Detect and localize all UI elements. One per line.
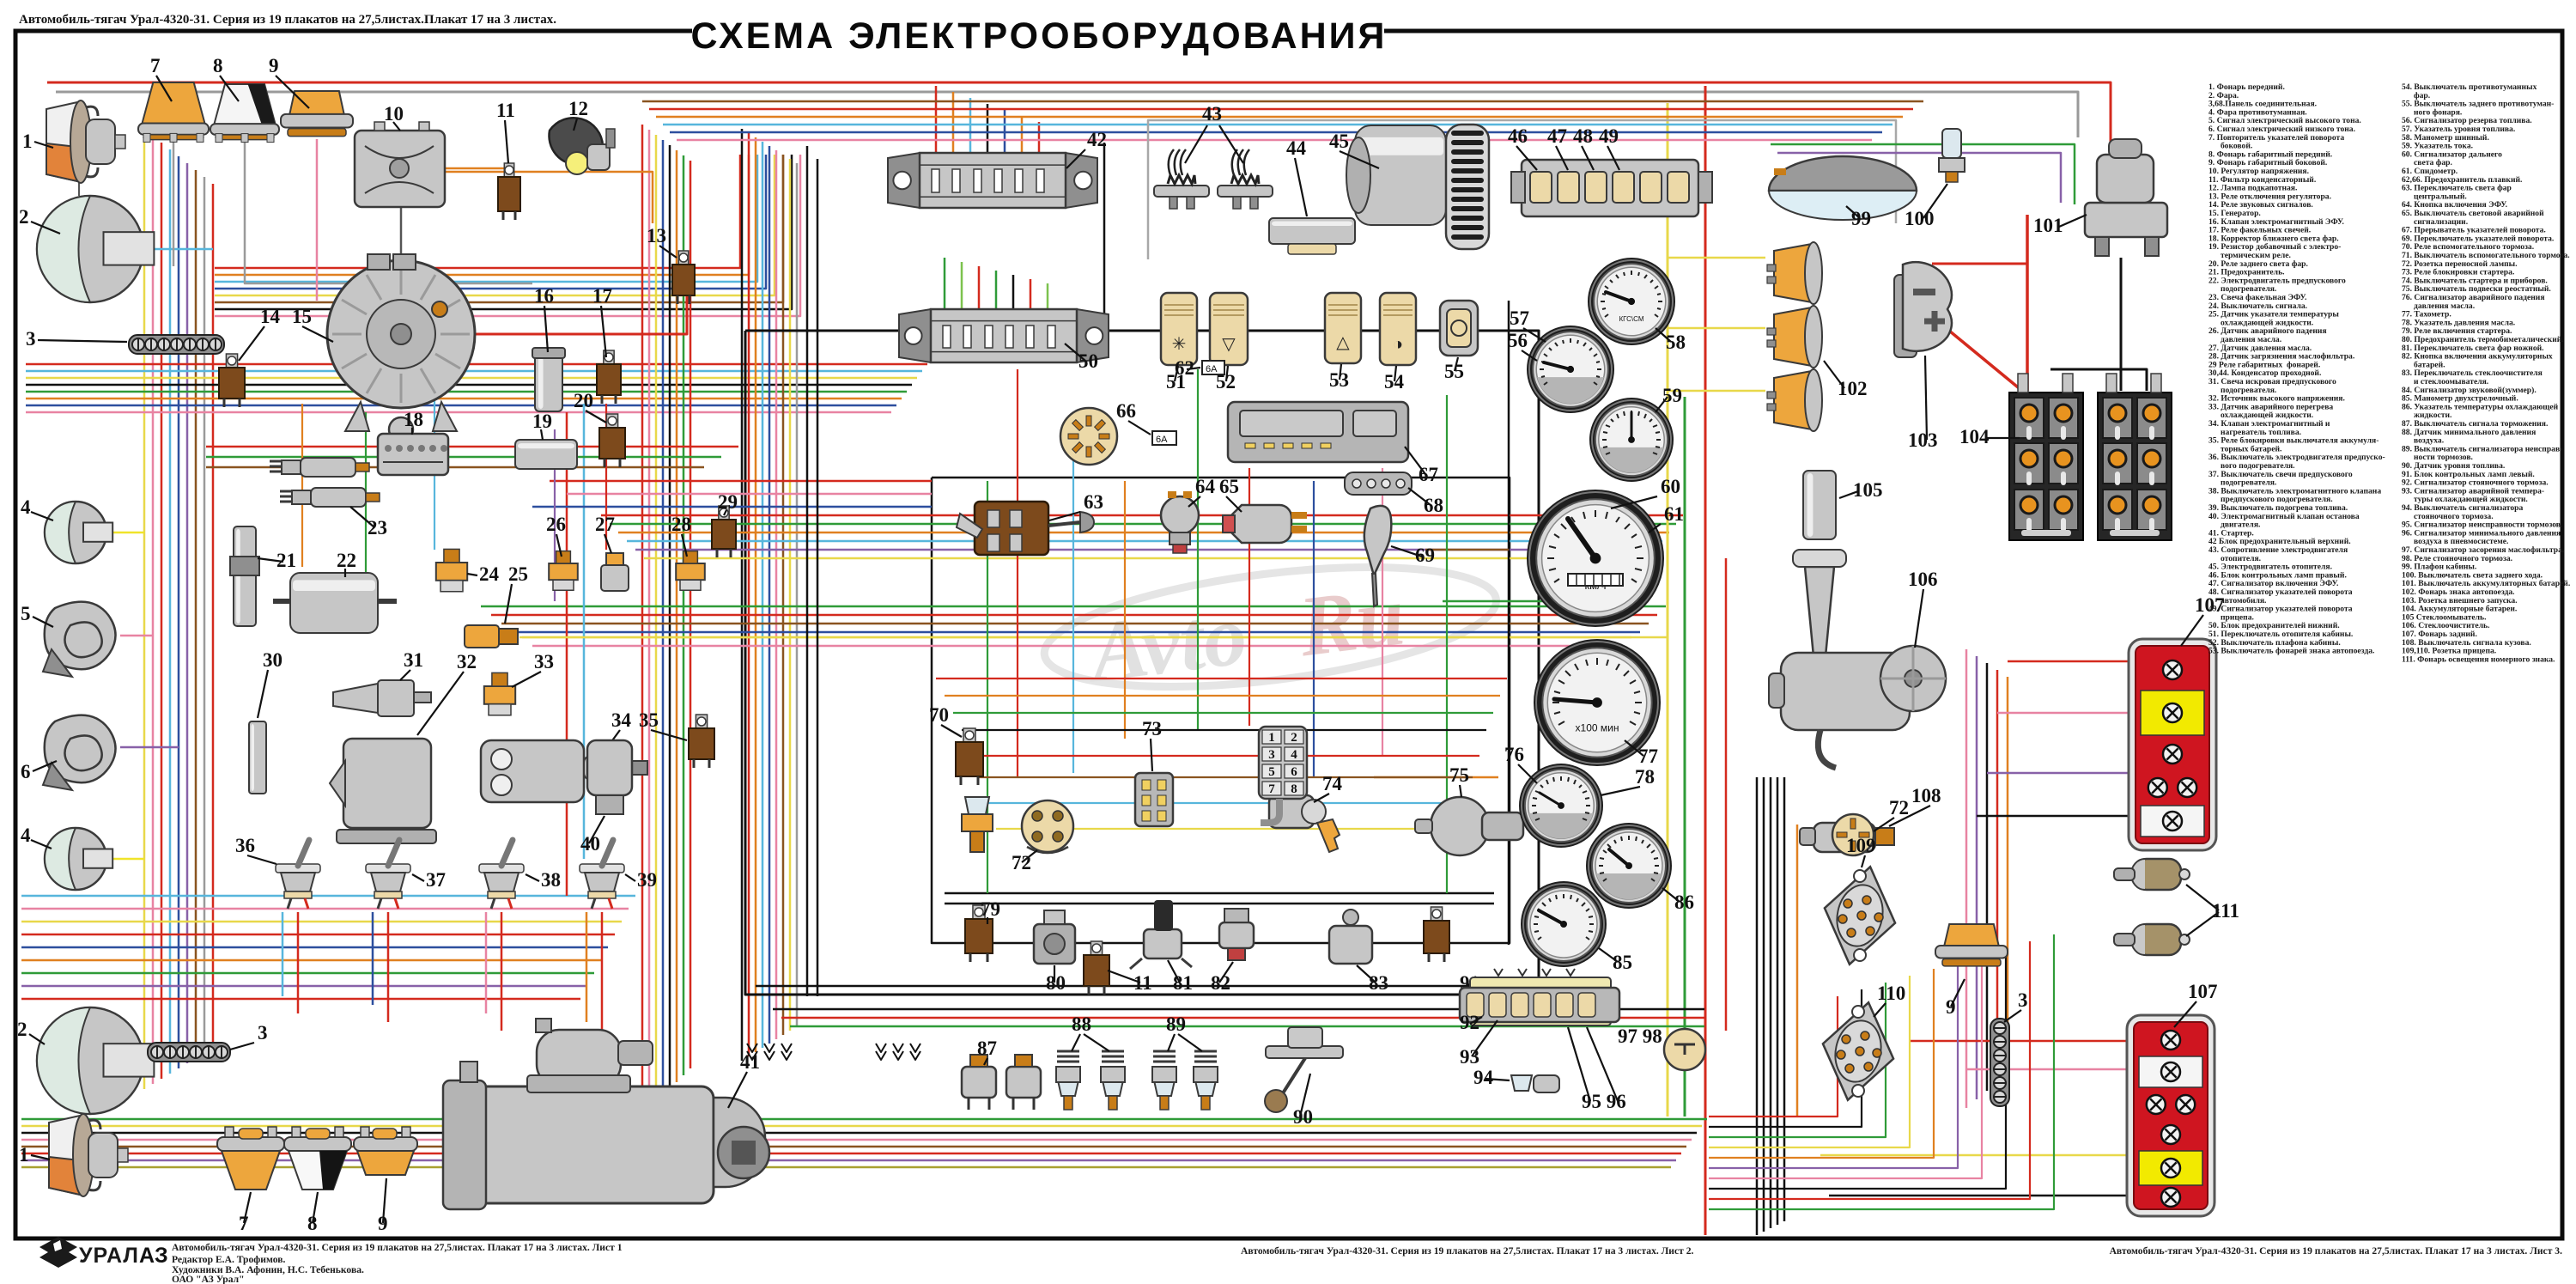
svg-text:94: 94 <box>1473 1067 1494 1088</box>
svg-text:38: 38 <box>541 869 561 891</box>
svg-text:5: 5 <box>1268 765 1275 779</box>
svg-text:24: 24 <box>479 563 500 585</box>
svg-text:42: 42 <box>1087 129 1107 150</box>
svg-text:УРАЛ: УРАЛ <box>79 1244 139 1268</box>
svg-text:16: 16 <box>534 285 554 307</box>
svg-text:Автомобиль-тягач Урал-4320-31.: Автомобиль-тягач Урал-4320-31. Серия из … <box>19 13 556 27</box>
svg-text:70: 70 <box>929 704 949 726</box>
svg-text:111: 111 <box>2212 900 2239 922</box>
svg-text:КГС\СМ: КГС\СМ <box>1619 315 1644 323</box>
svg-text:92: 92 <box>1460 1012 1479 1033</box>
svg-text:72: 72 <box>1889 797 1909 818</box>
svg-text:20: 20 <box>574 390 593 411</box>
svg-text:3: 3 <box>26 328 36 350</box>
svg-text:8: 8 <box>307 1213 318 1234</box>
svg-text:68: 68 <box>1424 495 1443 516</box>
svg-text:17: 17 <box>592 285 612 307</box>
svg-text:26: 26 <box>546 514 566 535</box>
svg-text:✳: ✳ <box>1172 335 1187 354</box>
svg-text:12: 12 <box>568 98 588 119</box>
svg-text:31: 31 <box>404 649 423 671</box>
svg-text:77: 77 <box>1638 745 1658 767</box>
svg-text:50: 50 <box>1078 350 1098 372</box>
svg-text:6A: 6A <box>1206 364 1218 374</box>
svg-text:74: 74 <box>1322 773 1343 794</box>
svg-text:110: 110 <box>1877 983 1905 1004</box>
svg-text:107: 107 <box>2188 981 2218 1002</box>
svg-text:66: 66 <box>1116 400 1136 422</box>
svg-text:100: 100 <box>1905 208 1935 229</box>
svg-text:33: 33 <box>534 651 554 672</box>
svg-text:2: 2 <box>1291 731 1297 745</box>
svg-text:44: 44 <box>1286 137 1307 159</box>
svg-text:25: 25 <box>508 563 528 585</box>
svg-text:11: 11 <box>496 100 515 121</box>
svg-text:СХЕМА ЭЛЕКТРООБОРУДОВАНИЯ: СХЕМА ЭЛЕКТРООБОРУДОВАНИЯ <box>691 15 1388 57</box>
svg-text:3: 3 <box>1268 748 1275 762</box>
svg-text:2: 2 <box>19 206 29 228</box>
svg-text:Автомобиль-тягач Урал-4320-31.: Автомобиль-тягач Урал-4320-31. Серия из … <box>1241 1245 1694 1257</box>
svg-text:1: 1 <box>1268 731 1275 745</box>
svg-text:88: 88 <box>1072 1013 1091 1035</box>
svg-text:18: 18 <box>404 409 423 430</box>
svg-text:75: 75 <box>1449 764 1469 786</box>
svg-text:3: 3 <box>258 1022 268 1044</box>
svg-text:7: 7 <box>150 55 161 76</box>
svg-text:39: 39 <box>637 869 657 891</box>
svg-text:99: 99 <box>1851 208 1871 229</box>
svg-text:1: 1 <box>19 1144 29 1165</box>
svg-text:47: 47 <box>1547 125 1567 147</box>
svg-text:102: 102 <box>1838 378 1868 399</box>
svg-text:45: 45 <box>1329 131 1349 152</box>
svg-text:109: 109 <box>1846 835 1876 856</box>
svg-text:2: 2 <box>17 1019 27 1040</box>
svg-text:1: 1 <box>22 131 33 152</box>
svg-text:7: 7 <box>239 1213 249 1234</box>
svg-text:63: 63 <box>1084 491 1103 513</box>
svg-text:41: 41 <box>740 1051 760 1073</box>
svg-text:59: 59 <box>1662 385 1682 406</box>
svg-text:105: 105 <box>1853 479 1883 501</box>
svg-text:76: 76 <box>1504 744 1524 765</box>
svg-text:6: 6 <box>21 761 31 782</box>
svg-text:19: 19 <box>532 411 552 432</box>
svg-text:89: 89 <box>1166 1013 1186 1035</box>
svg-text:49: 49 <box>1599 125 1619 147</box>
svg-text:14: 14 <box>260 306 281 327</box>
svg-text:28: 28 <box>671 514 691 535</box>
svg-text:27: 27 <box>595 514 615 535</box>
svg-text:Автомобиль-тягач Урал-4320-31.: Автомобиль-тягач Урал-4320-31. Серия из … <box>2110 1245 2563 1257</box>
svg-text:64: 64 <box>1195 476 1216 497</box>
svg-text:АЗ: АЗ <box>139 1244 168 1268</box>
svg-text:6: 6 <box>1291 765 1297 779</box>
svg-text:61: 61 <box>1664 503 1684 525</box>
svg-text:43: 43 <box>1202 103 1222 125</box>
svg-text:104: 104 <box>1959 426 1990 447</box>
svg-text:48: 48 <box>1573 125 1593 147</box>
svg-text:56: 56 <box>1508 330 1528 351</box>
svg-text:x100 мин: x100 мин <box>1576 721 1619 733</box>
svg-text:97 98: 97 98 <box>1618 1025 1662 1047</box>
svg-text:10: 10 <box>384 103 404 125</box>
svg-text:55: 55 <box>1444 361 1464 382</box>
svg-text:57: 57 <box>1510 307 1529 329</box>
svg-text:29: 29 <box>718 491 738 513</box>
svg-text:30: 30 <box>263 649 283 671</box>
svg-text:79: 79 <box>981 898 1000 920</box>
svg-text:▽: ▽ <box>1222 335 1236 354</box>
svg-text:△: △ <box>1336 333 1350 352</box>
svg-text:65: 65 <box>1219 476 1239 497</box>
svg-text:Ru: Ru <box>1293 567 1410 674</box>
svg-text:73: 73 <box>1142 718 1162 739</box>
svg-text:13: 13 <box>647 225 666 246</box>
svg-text:87: 87 <box>977 1038 997 1059</box>
svg-text:32: 32 <box>457 651 477 672</box>
svg-text:106: 106 <box>1908 569 1938 590</box>
svg-text:46: 46 <box>1508 125 1528 147</box>
svg-text:4: 4 <box>21 496 31 518</box>
svg-text:7: 7 <box>1268 782 1275 796</box>
svg-text:101: 101 <box>2033 215 2063 236</box>
svg-text:83: 83 <box>1369 972 1388 994</box>
svg-text:4: 4 <box>1291 748 1297 762</box>
svg-text:67: 67 <box>1419 464 1438 485</box>
svg-text:◑: ◑ <box>1393 335 1403 354</box>
svg-text:Автомобиль-тягач Урал-4320-31.: Автомобиль-тягач Урал-4320-31. Серия из … <box>172 1242 623 1253</box>
svg-text:Avto: Avto <box>1080 587 1252 701</box>
svg-text:35: 35 <box>639 709 659 731</box>
svg-text:36: 36 <box>235 835 255 856</box>
svg-text:5: 5 <box>21 603 31 624</box>
svg-text:22: 22 <box>337 550 356 571</box>
svg-text:15: 15 <box>292 306 312 327</box>
svg-text:6A: 6A <box>1156 435 1168 445</box>
svg-text:37: 37 <box>426 869 446 891</box>
svg-text:4: 4 <box>21 825 31 846</box>
svg-text:23: 23 <box>368 517 387 539</box>
svg-text:80: 80 <box>1046 972 1066 994</box>
svg-text:72: 72 <box>1012 852 1031 873</box>
svg-text:90: 90 <box>1293 1106 1313 1128</box>
svg-text:11: 11 <box>1133 972 1152 994</box>
svg-text:34: 34 <box>611 709 632 731</box>
svg-text:85: 85 <box>1613 952 1632 973</box>
svg-text:60: 60 <box>1661 476 1680 497</box>
svg-text:82: 82 <box>1211 972 1230 994</box>
svg-text:8: 8 <box>213 55 223 76</box>
svg-text:3: 3 <box>2018 989 2028 1011</box>
svg-text:108: 108 <box>1911 785 1941 806</box>
svg-text:9: 9 <box>269 55 279 76</box>
svg-text:103: 103 <box>1908 429 1938 451</box>
svg-text:86: 86 <box>1674 891 1694 913</box>
svg-text:53: 53 <box>1329 369 1349 391</box>
svg-text:40: 40 <box>580 833 600 855</box>
svg-text:8: 8 <box>1291 782 1297 796</box>
svg-text:78: 78 <box>1635 766 1655 788</box>
svg-text:ОАО "АЗ Урал": ОАО "АЗ Урал" <box>172 1274 245 1284</box>
svg-text:58: 58 <box>1666 332 1686 353</box>
svg-text:54: 54 <box>1384 371 1405 393</box>
